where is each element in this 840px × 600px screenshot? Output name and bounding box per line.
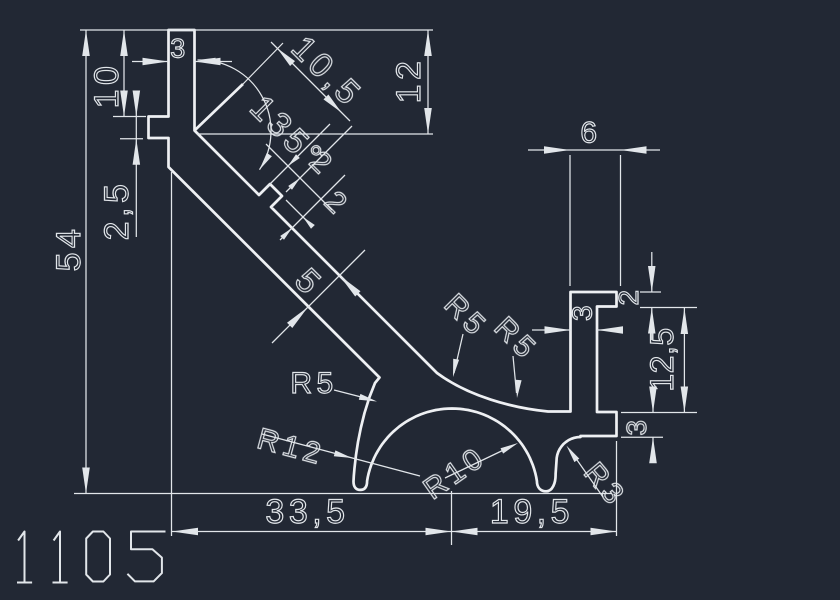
svg-text:3: 3 [567,301,598,321]
svg-text:54: 54 [50,225,88,272]
svg-text:2: 2 [613,285,644,305]
svg-text:3: 3 [170,34,190,64]
svg-text:33,5: 33,5 [265,493,349,531]
svg-text:6: 6 [580,117,601,150]
svg-text:19,5: 19,5 [490,493,574,531]
svg-text:3: 3 [621,416,652,436]
svg-text:12,5: 12,5 [644,327,680,391]
svg-text:12: 12 [390,57,428,104]
svg-text:2,5: 2,5 [98,180,136,241]
svg-text:10: 10 [88,62,126,109]
svg-text:R5: R5 [290,367,337,400]
